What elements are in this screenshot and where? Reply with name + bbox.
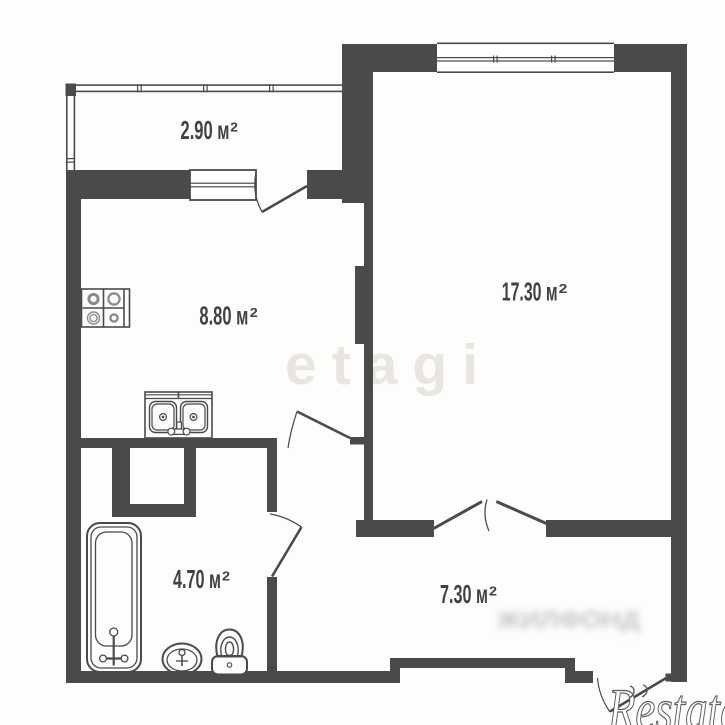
svg-text:2: 2	[489, 584, 497, 599]
svg-text:2: 2	[250, 305, 258, 320]
svg-text:2.90 м: 2.90 м	[181, 115, 230, 145]
svg-text:Restate: Restate	[607, 677, 725, 725]
svg-text:etagi: etagi	[285, 333, 493, 397]
svg-text:2: 2	[230, 120, 238, 135]
svg-text:7.30 м: 7.30 м	[440, 579, 488, 609]
svg-text:2: 2	[222, 569, 230, 584]
svg-text:8.80 м: 8.80 м	[199, 301, 248, 331]
svg-text:2: 2	[559, 281, 568, 296]
svg-text:17.30 м: 17.30 м	[502, 277, 558, 307]
svg-text:4.70 м: 4.70 м	[173, 564, 221, 594]
svg-text:ЖИЛФОНД: ЖИЛФОНД	[496, 607, 640, 634]
